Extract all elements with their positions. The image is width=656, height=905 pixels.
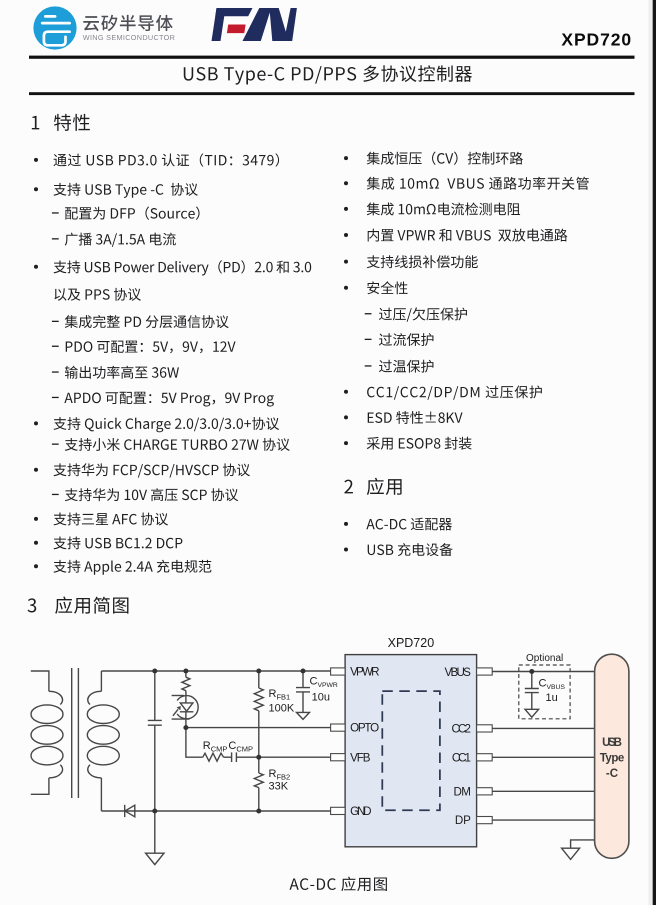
svg-text:VFB: VFB xyxy=(350,751,371,764)
svg-text:33K: 33K xyxy=(269,781,289,793)
svg-text:Type: Type xyxy=(600,753,625,765)
svg-text:DP: DP xyxy=(455,814,471,827)
svg-text:CC2: CC2 xyxy=(452,723,471,736)
svg-text:DM: DM xyxy=(454,785,471,798)
svg-text:GND: GND xyxy=(350,805,371,818)
svg-text:Optional: Optional xyxy=(526,653,563,664)
svg-text:VPWR: VPWR xyxy=(350,666,379,679)
svg-text:1u: 1u xyxy=(546,692,558,704)
svg-text:WING SEMICONDUCTOR: WING SEMICONDUCTOR xyxy=(83,33,175,42)
svg-text:100K: 100K xyxy=(269,703,295,715)
svg-text:OPTO: OPTO xyxy=(350,722,379,735)
svg-text:VBUS: VBUS xyxy=(445,666,472,679)
svg-text:CC1: CC1 xyxy=(452,751,471,764)
svg-text:XPD720: XPD720 xyxy=(388,636,435,650)
svg-text:-C: -C xyxy=(606,768,618,780)
svg-text:10u: 10u xyxy=(312,692,330,704)
svg-text:USB: USB xyxy=(602,737,622,749)
svg-text:XPD720: XPD720 xyxy=(561,30,632,50)
